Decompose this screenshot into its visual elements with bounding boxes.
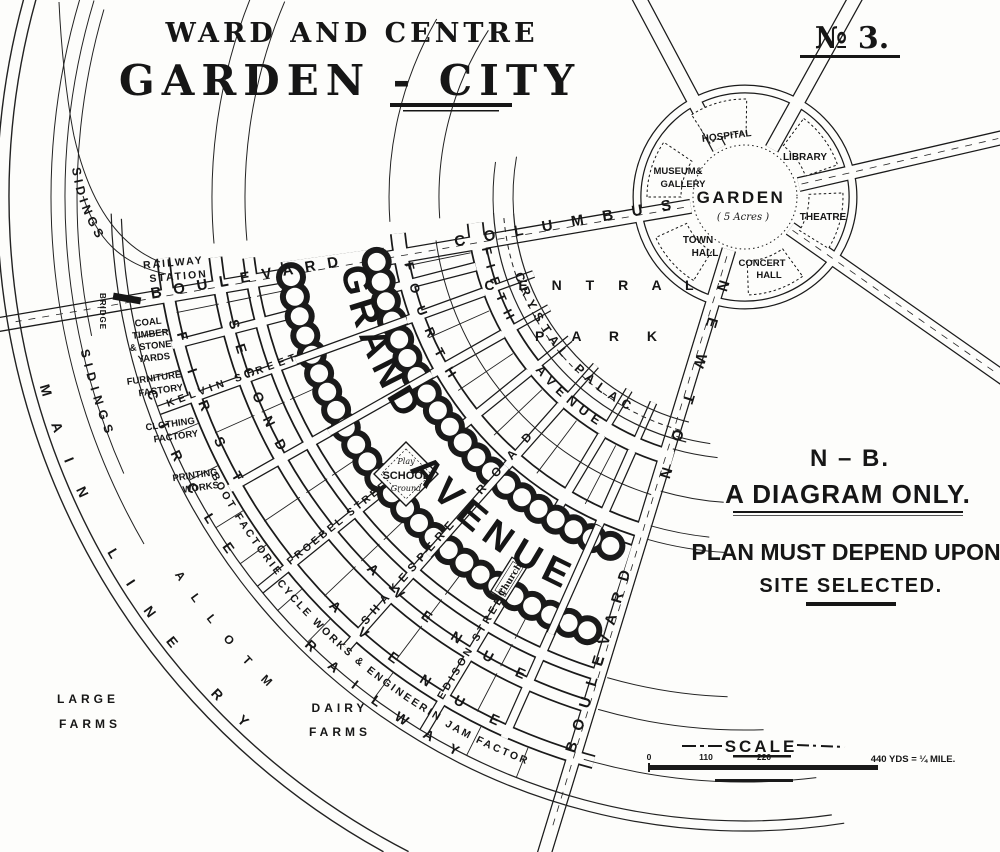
- boulevard-columbus-label: COLUMBUS: [453, 194, 691, 251]
- museum-label-1: MUSEUM&: [653, 166, 702, 177]
- large-farms-label-2: FARMS: [59, 717, 121, 731]
- map-canvas: Play SCHOOL Ground Church GARDEN ( 5 Acr…: [0, 0, 1000, 852]
- scale-tick-110: 110: [699, 752, 713, 762]
- site-selected-label: SITE SELECTED.: [759, 575, 942, 597]
- newton-text: NEWTON: [647, 278, 732, 507]
- dairy-farms-label-1: DAIRY: [312, 701, 369, 715]
- columbus-text: COLUMBUS: [453, 194, 691, 251]
- scale-tick-220: 220: [757, 752, 771, 762]
- plan-depend-label: PLAN MUST DEPEND UPON: [691, 539, 1000, 565]
- library-label: LIBRARY: [783, 152, 827, 163]
- large-farms-label-1: LARGE: [57, 692, 119, 706]
- coal-yards-label: COAL TIMBER & STONE YARDS: [127, 315, 174, 366]
- garden-city-diagram: Play SCHOOL Ground Church GARDEN ( 5 Acr…: [0, 0, 1000, 852]
- museum-label-2: GALLERY: [660, 179, 706, 190]
- school-play-label: Play: [396, 457, 415, 466]
- scale-bar: [648, 765, 878, 770]
- coal-line-4: YARDS: [137, 351, 170, 365]
- scale-tick-0: 0: [647, 752, 652, 762]
- title-underline-2: [403, 110, 499, 112]
- scale-right-label: 440 YDS = ¼ MILE.: [871, 754, 956, 765]
- concert-hall-label-2: HALL: [756, 270, 782, 281]
- nb-note-block: N – B. A DIAGRAM ONLY. PLAN MUST DEPEND …: [691, 445, 1000, 606]
- theatre-label: THEATRE: [800, 212, 847, 223]
- concert-hall-label-1: CONCERT: [739, 258, 786, 269]
- garden-acres-label: ( 5 Acres ): [717, 212, 769, 223]
- note-underline-1b: [733, 515, 963, 516]
- sidings-upper-label: SIDINGS: [69, 166, 108, 243]
- bridge-label: BRIDGE: [98, 293, 107, 330]
- railway-station-label: RAILWAY STATION: [143, 254, 209, 285]
- sidings-lower-text: SIDINGS: [78, 348, 118, 441]
- sidings-lower-label: SIDINGS: [78, 348, 118, 441]
- town-hall-label-1: TOWN: [683, 235, 713, 246]
- boulevard-newton-label: NEWTON: [647, 278, 732, 507]
- sidings-upper-text: SIDINGS: [69, 166, 108, 243]
- plate-number: № 3.: [815, 21, 889, 56]
- note-underline-1: [733, 511, 963, 513]
- plate-number-underline: [800, 55, 900, 58]
- scale-sub-bar: [715, 779, 793, 782]
- nb-label: N – B.: [810, 445, 890, 472]
- diagram-only-label: A DIAGRAM ONLY.: [725, 479, 971, 509]
- title-line-2: GARDEN - CITY: [119, 56, 581, 105]
- town-hall-label-2: HALL: [692, 248, 719, 259]
- scale-block: SCALE 0 110 220 440 YDS = ¼ MILE.: [647, 737, 956, 782]
- note-underline-2: [806, 602, 896, 606]
- title-underline: [390, 103, 512, 107]
- scale-dash-right: [797, 745, 845, 747]
- title-line-1: WARD AND CENTRE: [164, 18, 538, 49]
- scale-bar-tick: [648, 763, 650, 772]
- dairy-farms-label-2: FARMS: [309, 725, 371, 739]
- garden-label: GARDEN: [697, 188, 786, 207]
